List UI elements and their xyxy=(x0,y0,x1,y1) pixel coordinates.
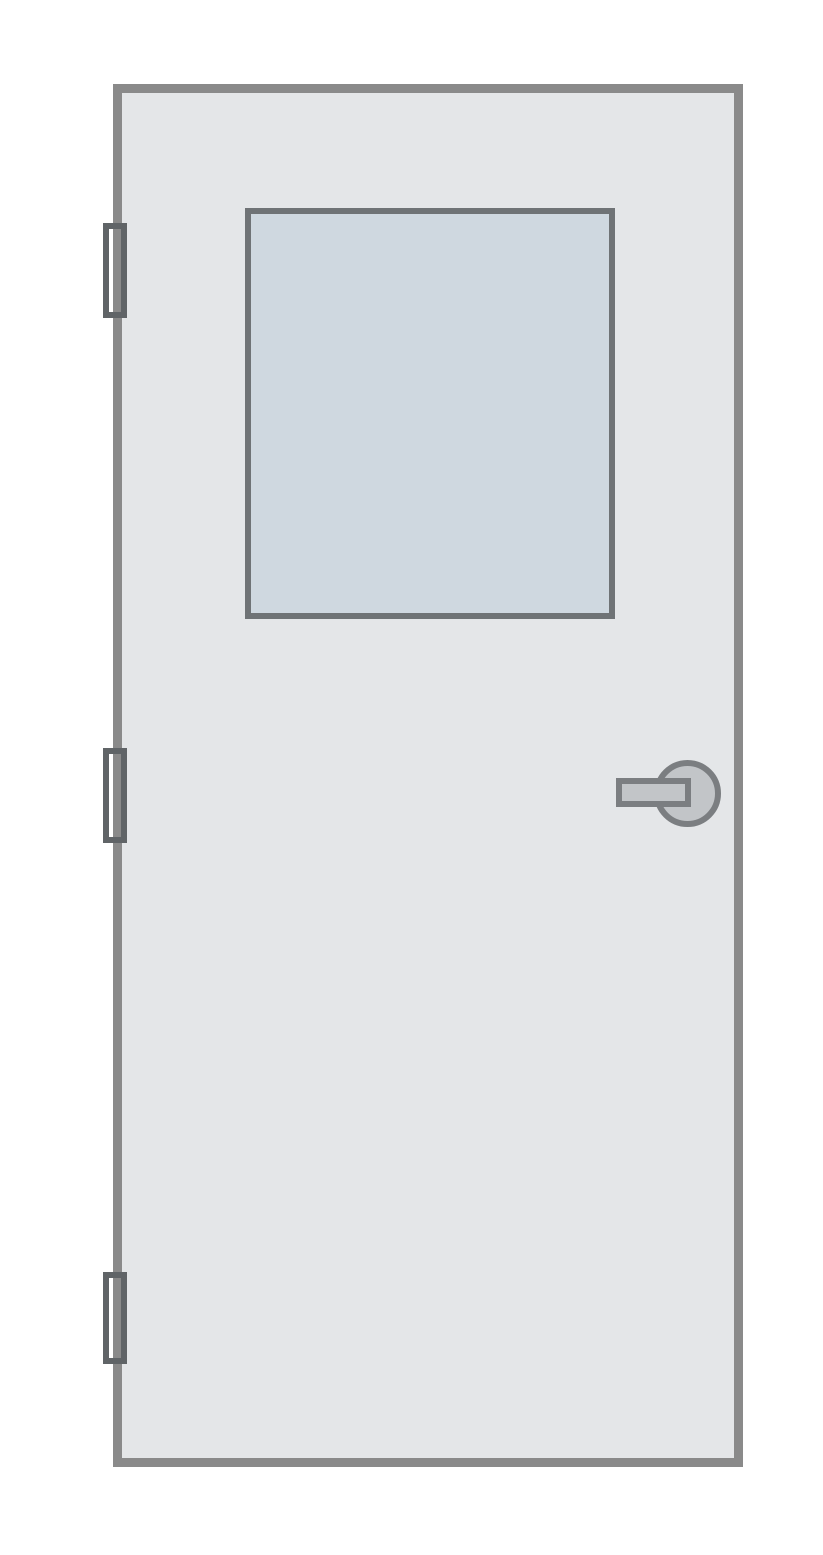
door-hinge-middle xyxy=(103,748,127,843)
door-handle-lever xyxy=(616,778,691,807)
door-hinge-bottom xyxy=(103,1272,127,1364)
door-window-glass xyxy=(245,208,615,619)
door-illustration-scene xyxy=(0,0,823,1555)
door-hinge-top xyxy=(103,223,127,318)
